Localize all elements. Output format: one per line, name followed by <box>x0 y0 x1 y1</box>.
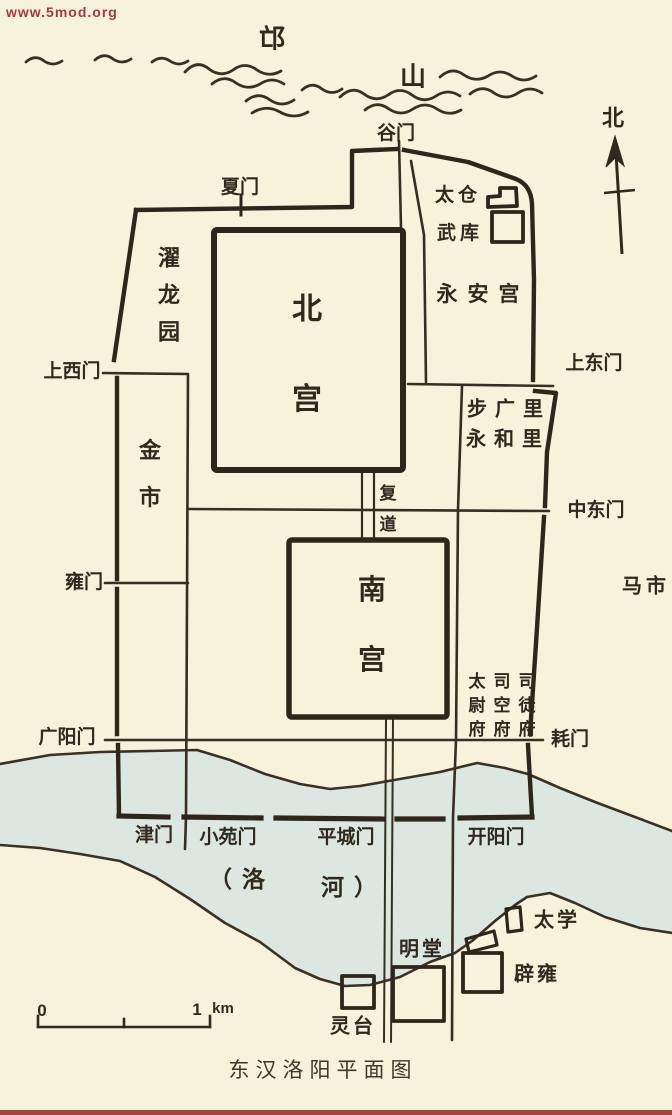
gate-label-kaiyang: 开阳门 <box>467 828 524 848</box>
north-arrow-icon <box>604 136 635 254</box>
luo-river-label-right: 河） <box>321 875 387 899</box>
taicang-building <box>488 188 517 207</box>
mountain-waves <box>26 56 542 116</box>
gate-label-guangyang: 广阳门 <box>38 728 95 748</box>
zhuolong-garden-label: 濯龙园 <box>157 240 181 351</box>
wuku-label: 武库 <box>437 224 483 244</box>
biyong-label: 辟雍 <box>514 965 560 986</box>
jin-market-label: 金市 <box>138 427 162 521</box>
fudao-label: 复道 <box>379 478 398 540</box>
taicang-label: 太仓 <box>435 186 481 206</box>
gate-label-yong: 雍门 <box>65 573 103 593</box>
bottom-edge-strip <box>0 1110 672 1115</box>
mountain-label-shan: 山 <box>400 63 426 90</box>
south-palace-label: 南宫 <box>357 555 387 695</box>
scale-unit-label: km <box>212 1001 234 1017</box>
gate-label-shangxi: 上西门 <box>43 362 100 382</box>
gate-label-gu: 谷门 <box>377 124 415 144</box>
scale-bar <box>38 1016 210 1027</box>
sikong-office-label: 司空府 <box>493 670 512 742</box>
wuku-building <box>492 212 523 242</box>
gate-label-shangdong: 上东门 <box>565 354 622 374</box>
scale-one-label: 1 <box>192 1001 201 1019</box>
biyong-building <box>463 953 502 992</box>
situ-office-label: 司徒府 <box>518 670 537 742</box>
mountain-label-mang: 邙 <box>259 25 285 52</box>
gate-label-xiaoyuan: 小苑门 <box>199 828 256 848</box>
gate-label-pingcheng: 平城门 <box>317 828 374 848</box>
gate-label-xia: 夏门 <box>221 178 259 198</box>
luo-river-area <box>0 750 672 986</box>
watermark: www.5mod.org <box>6 4 118 20</box>
palace-walls <box>214 230 447 717</box>
map-caption: 东汉洛阳平面图 <box>229 1060 418 1082</box>
luo-river-label-left: （洛 <box>209 867 275 891</box>
yongan-palace-label: 永安宫 <box>437 284 530 306</box>
gate-label-jin: 津门 <box>135 826 173 846</box>
gate-label-hao: 耗门 <box>551 730 589 750</box>
taixue-label: 太学 <box>534 911 580 932</box>
compass-north-label: 北 <box>602 106 624 129</box>
map-page: www.5mod.org 邙 山 北 谷门 夏门 上西门 上东门 中东门 雍门 … <box>0 0 672 1115</box>
gate-label-zhongdong: 中东门 <box>567 501 624 521</box>
lingtai-label: 灵台 <box>330 1017 376 1038</box>
scale-zero-label: 0 <box>37 1002 46 1020</box>
map-artwork <box>0 0 672 1115</box>
yonghelli-label: 永和里 <box>466 430 550 451</box>
ma-market-label: 马市 <box>622 577 670 598</box>
buguangli-label: 步广里 <box>467 400 551 421</box>
mingtang-label: 明堂 <box>399 940 445 961</box>
taiwei-office-label: 太尉府 <box>468 670 487 742</box>
north-palace-label: 北宫 <box>291 265 323 445</box>
